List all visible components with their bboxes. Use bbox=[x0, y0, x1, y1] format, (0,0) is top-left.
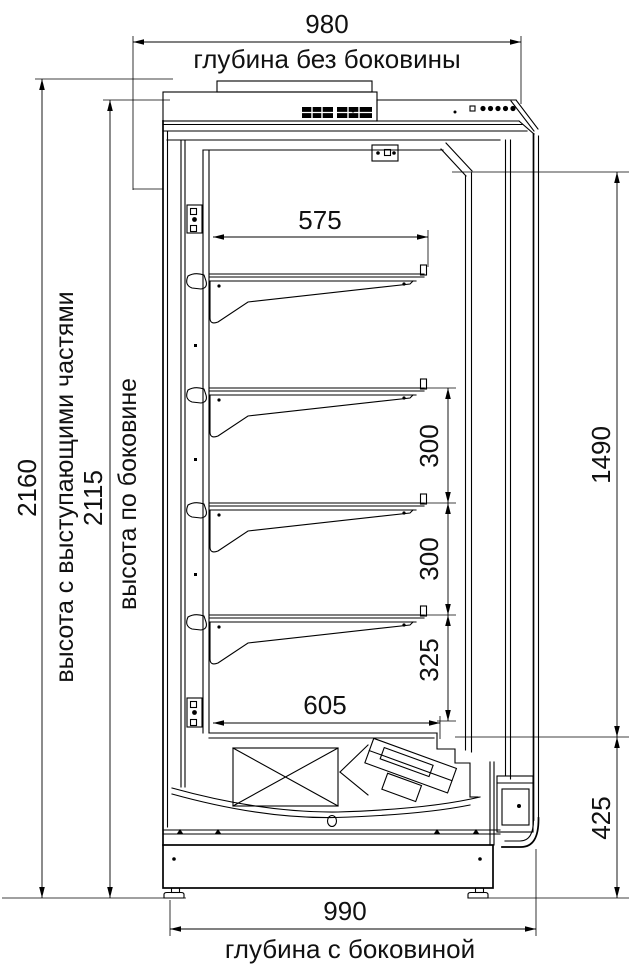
hinge-holes bbox=[352, 106, 516, 114]
dim-depth-top-value: 980 bbox=[305, 9, 348, 39]
dimension-interior-height: 1490 bbox=[452, 172, 629, 737]
dimension-height-side: 2115 высота по боковине bbox=[78, 100, 170, 898]
dim-height-overall-value: 2160 bbox=[12, 459, 42, 517]
dimension-base-height: 425 bbox=[487, 737, 629, 898]
dim-shelf-gap-3-value: 325 bbox=[414, 638, 444, 681]
cabinet-base bbox=[163, 829, 500, 898]
refrigerated-cabinet-section-drawing: 980 глубина без боковины 2160 высота с в… bbox=[0, 0, 639, 970]
ceiling-bracket bbox=[372, 145, 398, 161]
dim-height-side-label: высота по боковине bbox=[114, 378, 142, 610]
dimension-depth-bottom: 990 глубина с боковиной bbox=[170, 849, 536, 964]
dim-shelf-width-value: 575 bbox=[298, 205, 341, 235]
side-bracket bbox=[497, 776, 533, 832]
air-duct-box bbox=[233, 748, 338, 806]
machinery-compartment bbox=[172, 733, 533, 845]
shelf-3 bbox=[187, 494, 427, 552]
leveling-foot-left bbox=[164, 888, 184, 898]
leveling-foot-right bbox=[468, 888, 488, 898]
dim-depth-bottom-label: глубина с боковиной bbox=[225, 934, 475, 964]
dim-height-side-value: 2115 bbox=[78, 470, 108, 526]
dim-shelf-gap-1-value: 300 bbox=[414, 424, 444, 467]
dim-shelf-gap-2-value: 300 bbox=[414, 537, 444, 580]
dimension-shelf-gaps: 300 300 325 bbox=[414, 388, 456, 721]
dim-base-height-value: 425 bbox=[586, 796, 616, 839]
front-glass-panels bbox=[466, 134, 539, 847]
rail-plate-bottom bbox=[187, 698, 202, 727]
cabinet-top-housing bbox=[163, 81, 538, 176]
shelf-2 bbox=[187, 379, 427, 437]
dimension-deck-width: 605 bbox=[213, 690, 440, 739]
vent-grille-right bbox=[337, 107, 372, 118]
dim-height-overall-label: высота с выступающими частями bbox=[51, 291, 79, 682]
dimension-shelf-width: 575 bbox=[213, 205, 428, 267]
dim-interior-height-value: 1490 bbox=[586, 426, 616, 484]
rail-plate-top bbox=[187, 205, 202, 233]
dim-depth-bottom-value: 990 bbox=[323, 896, 366, 926]
vent-grille-left bbox=[302, 107, 333, 118]
shelf-4 bbox=[187, 606, 427, 664]
shelf-1 bbox=[187, 265, 427, 323]
cabinet-back-wall bbox=[163, 121, 209, 845]
dim-deck-width-value: 605 bbox=[303, 690, 346, 720]
dim-depth-top-label: глубина без боковины bbox=[193, 44, 460, 74]
